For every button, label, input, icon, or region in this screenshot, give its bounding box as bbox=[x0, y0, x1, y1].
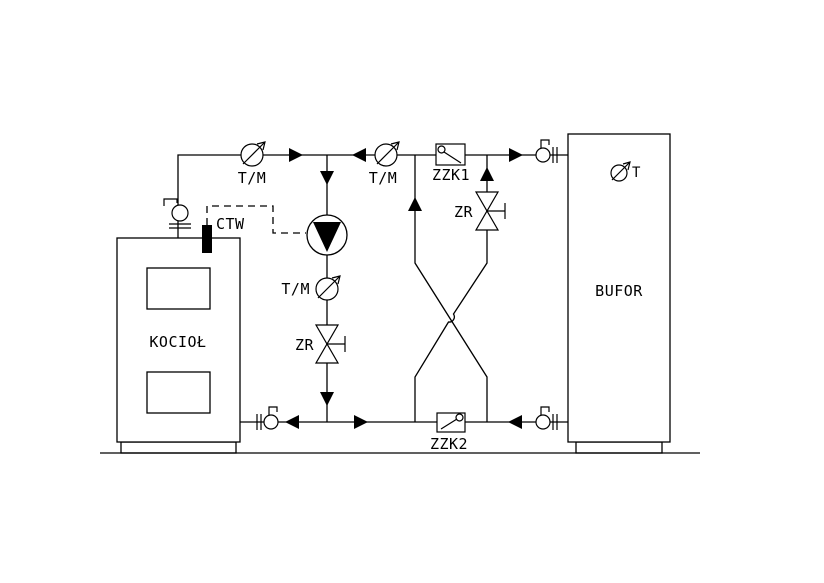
boiler-label: KOCIOŁ bbox=[149, 333, 206, 351]
boiler-upper-door bbox=[147, 268, 210, 309]
vent-valve-body bbox=[172, 205, 188, 221]
schematic-canvas: KOCIOŁ T BUFOR CTW T/M bbox=[0, 0, 824, 583]
zzk1-label: ZZK1 bbox=[432, 166, 470, 184]
buffer-temp-label: T bbox=[632, 165, 641, 181]
heating-schematic: KOCIOŁ T BUFOR CTW T/M bbox=[0, 0, 824, 583]
buffer-base bbox=[576, 442, 662, 453]
zr-valve-pump-label: ZR bbox=[295, 336, 315, 354]
tm-gauge-pump-label: T/M bbox=[281, 280, 310, 298]
zzk2-label: ZZK2 bbox=[430, 435, 468, 453]
zr-valve-bypass-label: ZR bbox=[454, 203, 474, 221]
tm-gauge-bypass-label: T/M bbox=[369, 169, 398, 187]
ball-valve-icon bbox=[536, 415, 550, 429]
tm-gauge-supply-label: T/M bbox=[238, 169, 267, 187]
ball-valve-icon bbox=[536, 148, 550, 162]
buffer-tank: T BUFOR bbox=[568, 134, 670, 453]
ctw-sensor-well bbox=[202, 225, 212, 253]
zzk1-check-valve bbox=[436, 144, 465, 165]
pump bbox=[307, 215, 347, 255]
boiler: KOCIOŁ bbox=[117, 238, 240, 453]
buffer-label: BUFOR bbox=[595, 282, 643, 300]
check-valve-icon bbox=[436, 144, 465, 165]
ball-valve-icon bbox=[264, 415, 278, 429]
boiler-base bbox=[121, 442, 236, 453]
boiler-lower-door bbox=[147, 372, 210, 413]
zzk2-check-valve bbox=[437, 413, 465, 432]
ctw-label: CTW bbox=[216, 215, 245, 233]
